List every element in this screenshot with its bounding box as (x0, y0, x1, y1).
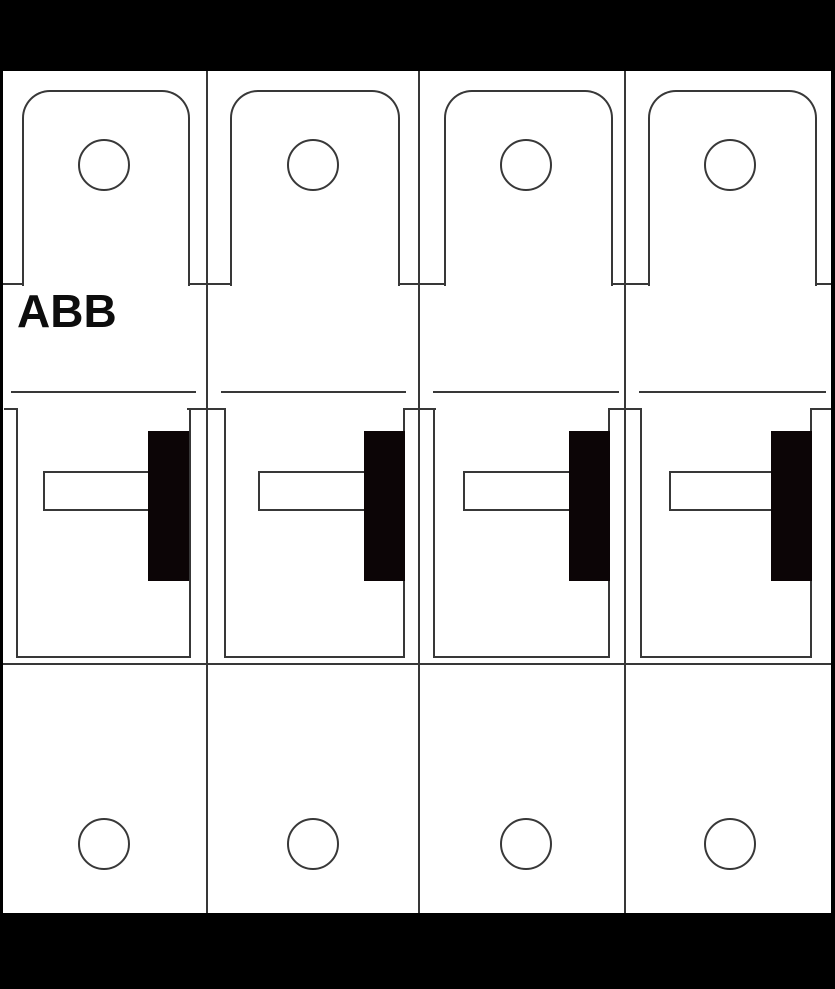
brand-label: ABB (17, 288, 117, 334)
frame-background: ABB (0, 0, 835, 989)
label-separator-line (221, 391, 406, 393)
screw-hole-icon (704, 139, 756, 191)
switch-handle-grip (569, 431, 610, 581)
label-separator-line (639, 391, 826, 393)
switch-handle-lever (258, 471, 368, 511)
screw-hole-icon (78, 139, 130, 191)
screw-hole-icon (500, 139, 552, 191)
label-separator-line (433, 391, 619, 393)
switch-handle-lever (463, 471, 573, 511)
label-separator-line (11, 391, 196, 393)
device-body: ABB (3, 71, 831, 913)
module-pole-3 (418, 71, 624, 913)
module-pole-2 (207, 71, 418, 913)
screw-hole-icon (704, 818, 756, 870)
switch-handle-lever (669, 471, 777, 511)
module-pole-4 (624, 71, 831, 913)
switch-handle-lever (43, 471, 153, 511)
switch-handle-grip (148, 431, 189, 581)
screw-hole-icon (500, 818, 552, 870)
switch-handle-grip (771, 431, 812, 581)
screw-hole-icon (78, 818, 130, 870)
screw-hole-icon (287, 818, 339, 870)
module-pole-1: ABB (3, 71, 207, 913)
switch-handle-grip (364, 431, 405, 581)
screw-hole-icon (287, 139, 339, 191)
